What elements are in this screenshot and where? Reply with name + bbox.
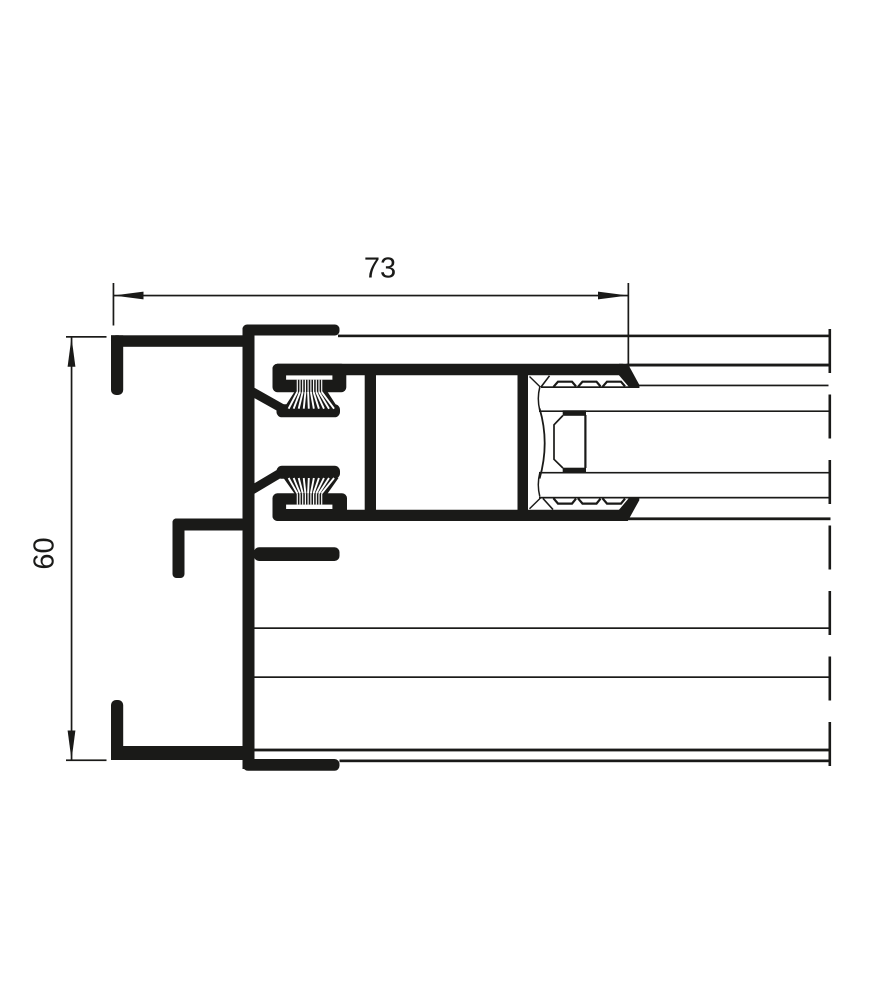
svg-text:60: 60	[29, 537, 61, 569]
svg-text:73: 73	[364, 253, 396, 285]
